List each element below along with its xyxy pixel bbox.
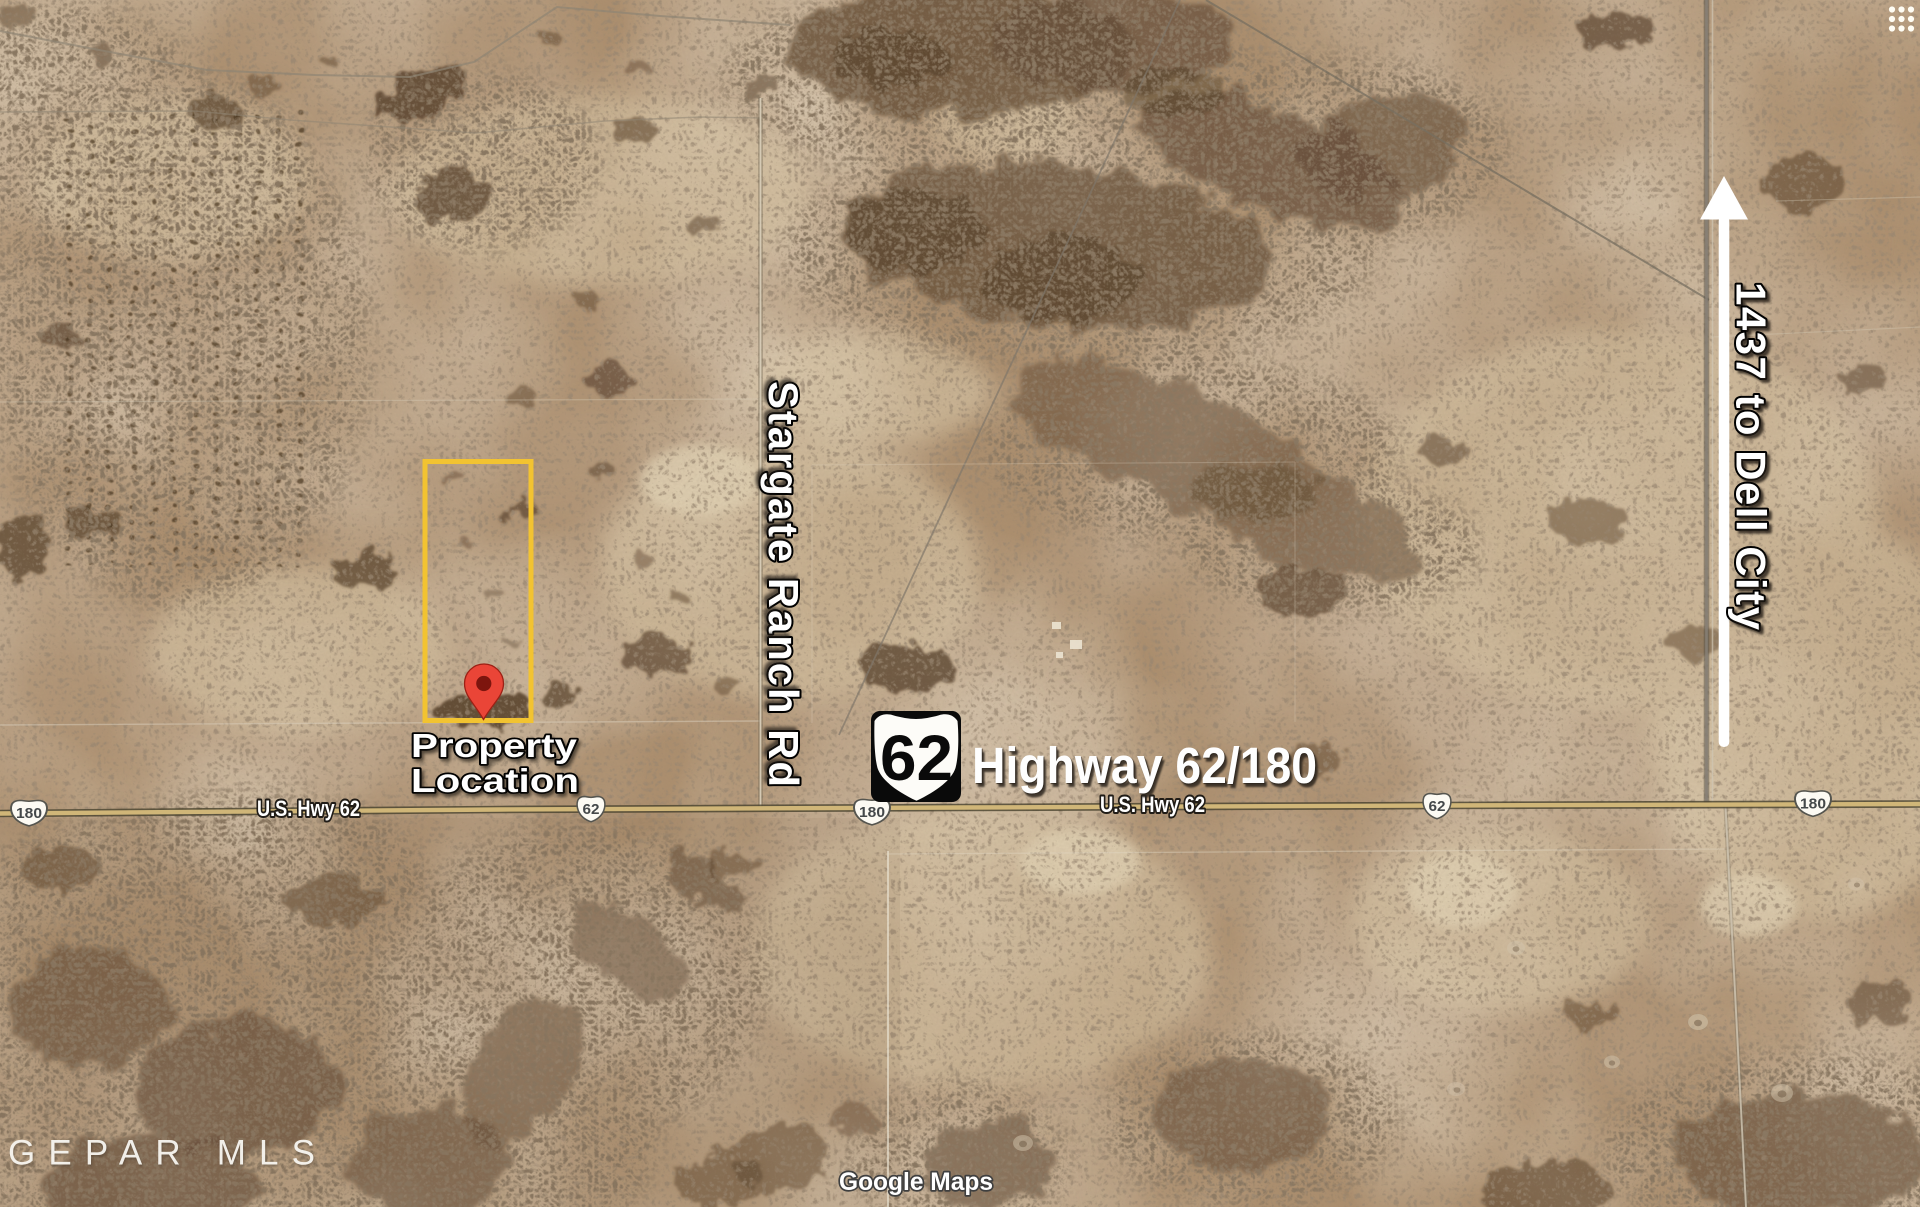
svg-text:180: 180: [859, 805, 885, 821]
svg-text:U.S. Hwy 62: U.S. Hwy 62: [1100, 792, 1205, 817]
svg-text:Property: Property: [411, 727, 578, 764]
svg-text:GEPAR MLS: GEPAR MLS: [8, 1134, 315, 1173]
svg-text:Stargate Ranch Rd: Stargate Ranch Rd: [760, 381, 807, 787]
svg-text:Highway 62/180: Highway 62/180: [972, 737, 1317, 794]
svg-text:62: 62: [1429, 799, 1446, 815]
svg-text:62: 62: [880, 722, 953, 794]
svg-text:Google Maps: Google Maps: [839, 1168, 993, 1196]
svg-text:1437 to Dell City: 1437 to Dell City: [1728, 282, 1775, 631]
svg-text:180: 180: [1800, 797, 1826, 813]
svg-text:62: 62: [583, 802, 600, 818]
svg-text:U.S. Hwy 62: U.S. Hwy 62: [257, 796, 360, 821]
svg-text:180: 180: [16, 806, 42, 822]
svg-text:Location: Location: [411, 762, 579, 799]
